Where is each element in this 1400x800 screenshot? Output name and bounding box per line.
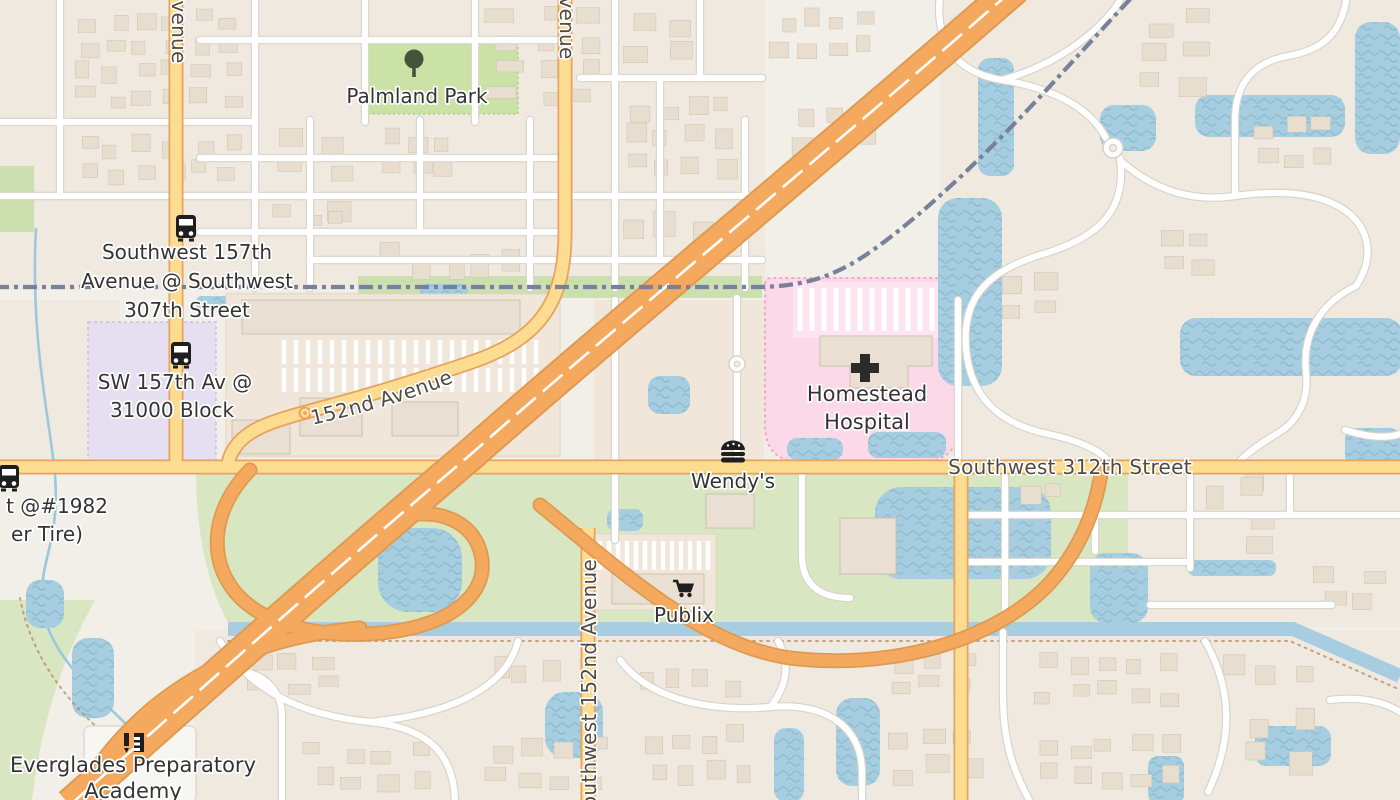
building: [1259, 148, 1279, 163]
school-icon: [124, 733, 144, 753]
building: [75, 86, 95, 97]
building: [1246, 742, 1266, 760]
road-label-312th: Southwest 312th Street: [948, 455, 1192, 479]
building: [1163, 765, 1180, 783]
building: [714, 97, 727, 111]
building: [218, 168, 235, 181]
building: [312, 657, 334, 669]
building: [1311, 117, 1331, 130]
building: [1256, 666, 1275, 685]
building: [1241, 478, 1263, 496]
building: [1352, 594, 1371, 610]
building: [331, 166, 353, 181]
building: [681, 157, 698, 173]
building: [485, 768, 506, 781]
building: [497, 61, 524, 72]
building: [494, 747, 513, 764]
building: [1296, 708, 1315, 730]
building: [653, 765, 666, 780]
building: [1102, 773, 1122, 789]
building: [799, 109, 814, 126]
building: [715, 129, 732, 149]
building: [137, 14, 156, 30]
building: [1297, 667, 1314, 682]
building: [888, 733, 907, 749]
building: [348, 750, 365, 764]
building: [1179, 78, 1206, 97]
building: [1021, 486, 1042, 504]
building: [1142, 43, 1166, 60]
hospital-label-line2: Hospital: [824, 410, 910, 434]
building: [1207, 486, 1224, 509]
building: [273, 205, 291, 217]
building: [386, 128, 399, 144]
building: [522, 738, 543, 756]
building: [189, 88, 206, 103]
building: [671, 41, 693, 59]
building: [856, 36, 870, 52]
building: [1002, 276, 1022, 293]
building: [829, 17, 842, 29]
building: [1186, 9, 1209, 23]
building: [82, 44, 100, 58]
building: [1313, 567, 1333, 583]
building: [805, 8, 820, 26]
building: [280, 129, 303, 147]
bus-stop-31000-label-line1: SW 157th Av @: [98, 370, 253, 394]
building: [434, 160, 452, 176]
building: [1040, 763, 1057, 778]
bus-icon: [0, 465, 19, 492]
building: [1140, 73, 1159, 87]
building: [923, 729, 945, 744]
building: [1003, 306, 1020, 319]
road-label-avenue-mid-partial: venue: [555, 0, 579, 60]
building: [1161, 231, 1183, 246]
building: [678, 766, 693, 786]
building: [1034, 692, 1049, 704]
wendys-label: Wendy's: [691, 469, 775, 493]
building: [1247, 537, 1273, 554]
building: [82, 136, 98, 148]
road-label-avenue-west-partial: venue: [167, 0, 191, 63]
building: [378, 775, 400, 792]
building: [550, 777, 569, 790]
building: [542, 60, 558, 77]
building: [1165, 256, 1184, 268]
building: [690, 97, 709, 115]
bus-stop-31000-label-line2: 31000 Block: [110, 398, 234, 422]
building: [1071, 658, 1088, 675]
bus-icon: [176, 215, 196, 242]
building: [1040, 741, 1058, 755]
building: [227, 135, 241, 150]
building: [371, 751, 390, 764]
building: [115, 15, 128, 30]
bus-icon: [171, 342, 191, 369]
building: [196, 9, 212, 20]
building: [277, 653, 296, 669]
building: [340, 777, 360, 789]
building: [926, 755, 949, 773]
building: [131, 91, 150, 105]
building: [1365, 571, 1386, 583]
building: [328, 211, 342, 223]
building: [1314, 148, 1331, 164]
building: [1131, 774, 1152, 787]
building: [703, 736, 717, 753]
building: [1287, 116, 1306, 132]
bus-stop-307-label-line2: Avenue @ Southwest: [81, 269, 293, 293]
building: [1100, 658, 1116, 671]
building: [132, 42, 145, 55]
building: [1192, 260, 1214, 275]
building: [769, 42, 789, 58]
building: [1161, 694, 1179, 707]
building: [322, 138, 343, 156]
building: [624, 46, 648, 62]
building: [139, 166, 156, 180]
building: [107, 40, 125, 51]
building: [288, 684, 310, 694]
building: [512, 666, 526, 682]
building: [102, 145, 115, 159]
map-canvas[interactable]: Palmland Park Southwest 157th Avenue @ S…: [0, 0, 1400, 800]
building: [634, 14, 656, 31]
building: [707, 760, 725, 779]
hospital-label-line1: Homestead: [807, 382, 927, 406]
building: [1223, 655, 1245, 675]
building: [892, 682, 910, 693]
bus-stop-tire-label-line1: t @#1982: [6, 494, 108, 518]
academy-label-line1: Everglades Preparatory: [10, 753, 256, 777]
building: [109, 170, 124, 185]
building: [132, 134, 150, 151]
building: [319, 676, 339, 686]
building: [1074, 685, 1090, 697]
building: [219, 18, 236, 29]
road-label-152nd-south: Southwest 152nd Avenue: [577, 559, 601, 800]
building: [583, 60, 599, 75]
building: [1163, 734, 1181, 752]
building: [726, 681, 741, 697]
building: [919, 676, 939, 687]
building: [624, 220, 644, 239]
building: [1046, 483, 1061, 496]
building: [1183, 42, 1209, 56]
bus-stop-tire-label-line2: er Tire): [11, 522, 83, 546]
building: [303, 742, 319, 754]
school-grounds-area: [88, 322, 216, 468]
building: [140, 63, 156, 76]
building: [111, 97, 125, 108]
building: [78, 20, 95, 33]
hospital-parking-stripes: [800, 288, 944, 331]
building: [225, 96, 242, 107]
building: [1132, 689, 1150, 703]
building: [318, 767, 333, 785]
building: [1289, 752, 1312, 775]
building: [485, 9, 514, 23]
building: [692, 670, 707, 687]
building: [1126, 659, 1140, 673]
building: [630, 106, 650, 122]
building: [798, 44, 817, 59]
building: [519, 773, 541, 788]
building: [574, 89, 590, 102]
building: [83, 164, 98, 178]
building: [727, 725, 744, 742]
building: [670, 20, 691, 37]
building: [737, 766, 750, 783]
building: [485, 87, 516, 99]
building: [227, 63, 242, 76]
building: [1075, 767, 1092, 784]
building: [629, 154, 647, 167]
palmland-park-label: Palmland Park: [346, 84, 488, 108]
building: [685, 125, 704, 141]
building: [858, 12, 874, 24]
building: [1035, 301, 1056, 312]
building: [1254, 126, 1273, 139]
building: [783, 19, 796, 32]
academy-label-line2: Academy: [84, 779, 182, 800]
building: [627, 123, 647, 142]
building: [1189, 234, 1207, 246]
building: [718, 160, 738, 179]
building: [893, 771, 912, 786]
building: [415, 772, 430, 789]
building: [645, 737, 662, 754]
building: [666, 669, 679, 688]
building: [1149, 24, 1173, 37]
bus-stop-307-label-line1: Southwest 157th: [102, 240, 272, 264]
building: [75, 61, 88, 78]
building: [1161, 654, 1178, 671]
building: [1250, 720, 1268, 738]
building: [543, 661, 560, 682]
building: [191, 65, 211, 77]
building: [1040, 653, 1058, 668]
building: [582, 38, 600, 54]
building: [1284, 156, 1303, 168]
publix-label: Publix: [654, 603, 714, 627]
building: [434, 138, 448, 151]
building: [1071, 747, 1091, 759]
building: [1034, 272, 1058, 290]
building: [830, 44, 848, 56]
building: [102, 67, 116, 84]
building: [1098, 680, 1117, 694]
building: [554, 742, 573, 758]
building: [1133, 735, 1154, 751]
building: [1094, 740, 1111, 752]
building: [673, 735, 690, 748]
bus-stop-307-label-line3: 307th Street: [124, 298, 250, 322]
